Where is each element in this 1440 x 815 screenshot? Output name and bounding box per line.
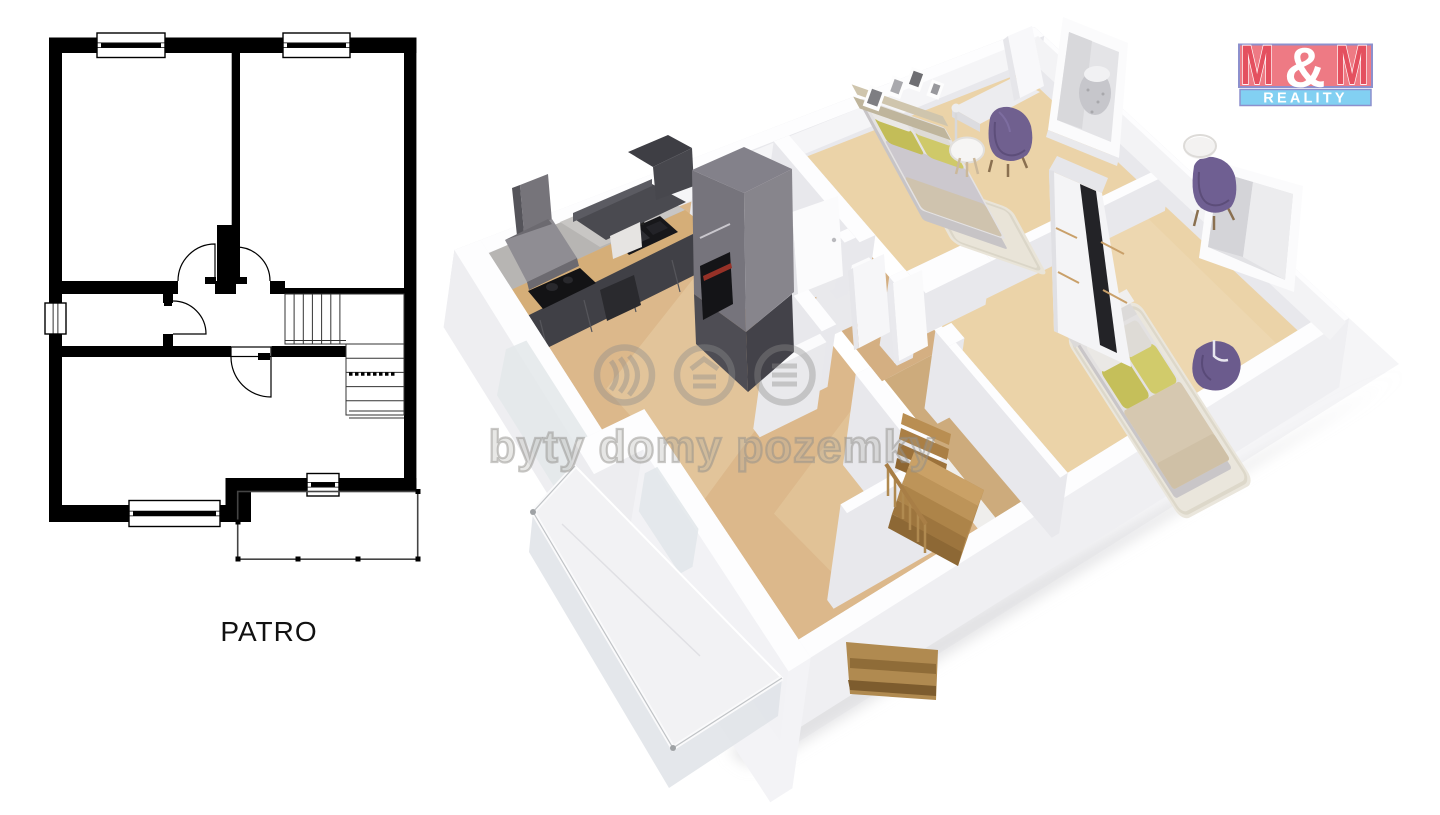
svg-text:M: M	[1335, 35, 1369, 97]
svg-text:M: M	[1240, 35, 1274, 97]
svg-text:REALITY: REALITY	[1263, 91, 1347, 107]
svg-text:PATRO: PATRO	[220, 616, 317, 647]
svg-text:byty domy pozemky: byty domy pozemky	[488, 421, 935, 472]
